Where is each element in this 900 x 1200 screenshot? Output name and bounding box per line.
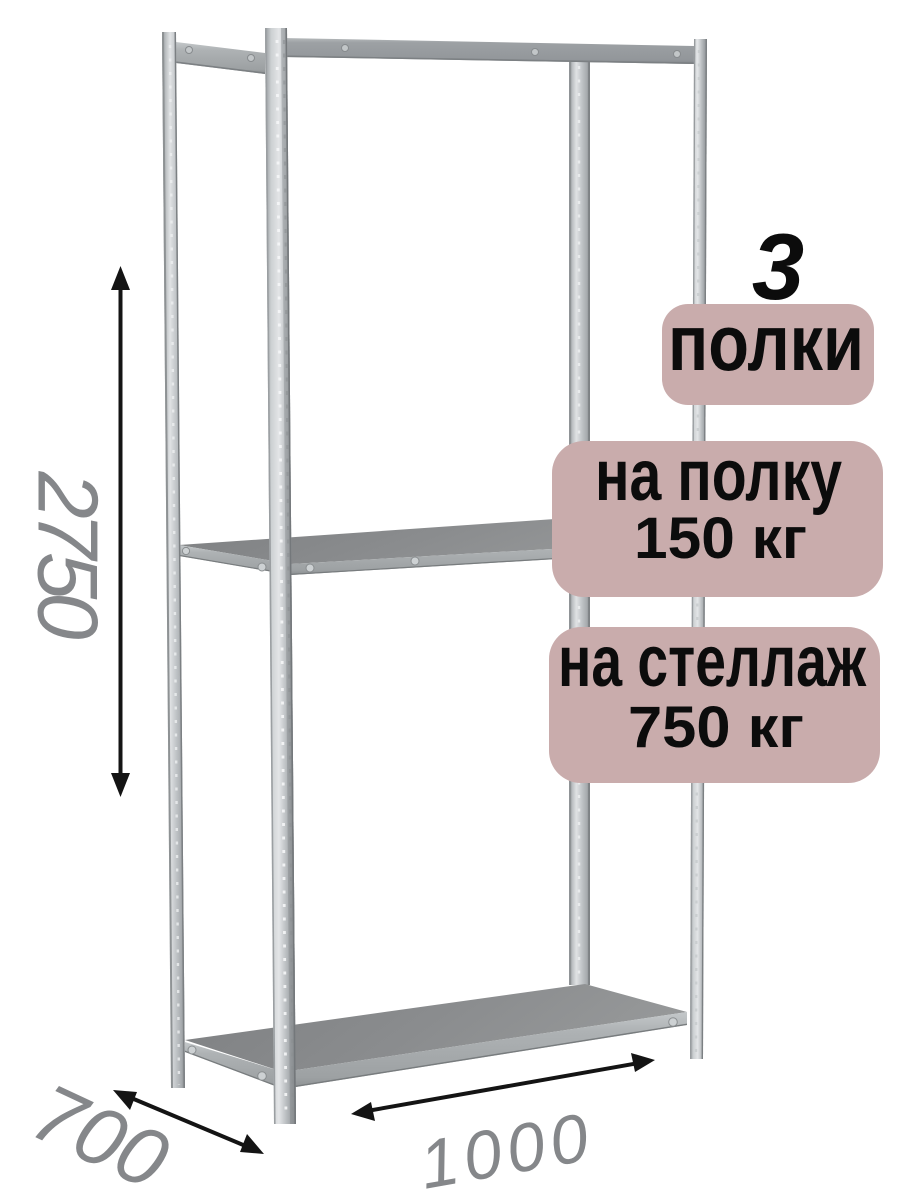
- svg-text:750 кг: 750 кг: [628, 695, 804, 760]
- svg-text:на стеллаж: на стеллаж: [558, 622, 867, 702]
- svg-text:2750: 2750: [20, 470, 115, 639]
- svg-text:на полку: на полку: [595, 436, 842, 516]
- svg-text:150 кг: 150 кг: [634, 506, 807, 571]
- svg-text:полки: полки: [668, 298, 864, 387]
